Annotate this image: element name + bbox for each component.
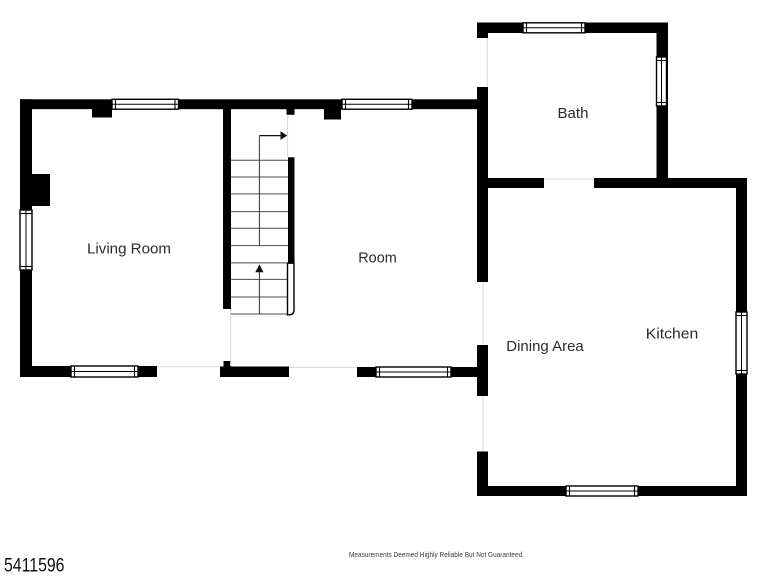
svg-text:Dining Area: Dining Area xyxy=(506,339,584,355)
svg-text:Room: Room xyxy=(358,251,397,267)
svg-text:5411596: 5411596 xyxy=(4,555,65,576)
svg-text:Living Room: Living Room xyxy=(87,242,171,258)
svg-text:Kitchen: Kitchen xyxy=(646,327,699,343)
svg-text:Measurements Deemed Highly Rel: Measurements Deemed Highly Reliable But … xyxy=(349,550,524,559)
svg-text:Bath: Bath xyxy=(558,106,589,122)
